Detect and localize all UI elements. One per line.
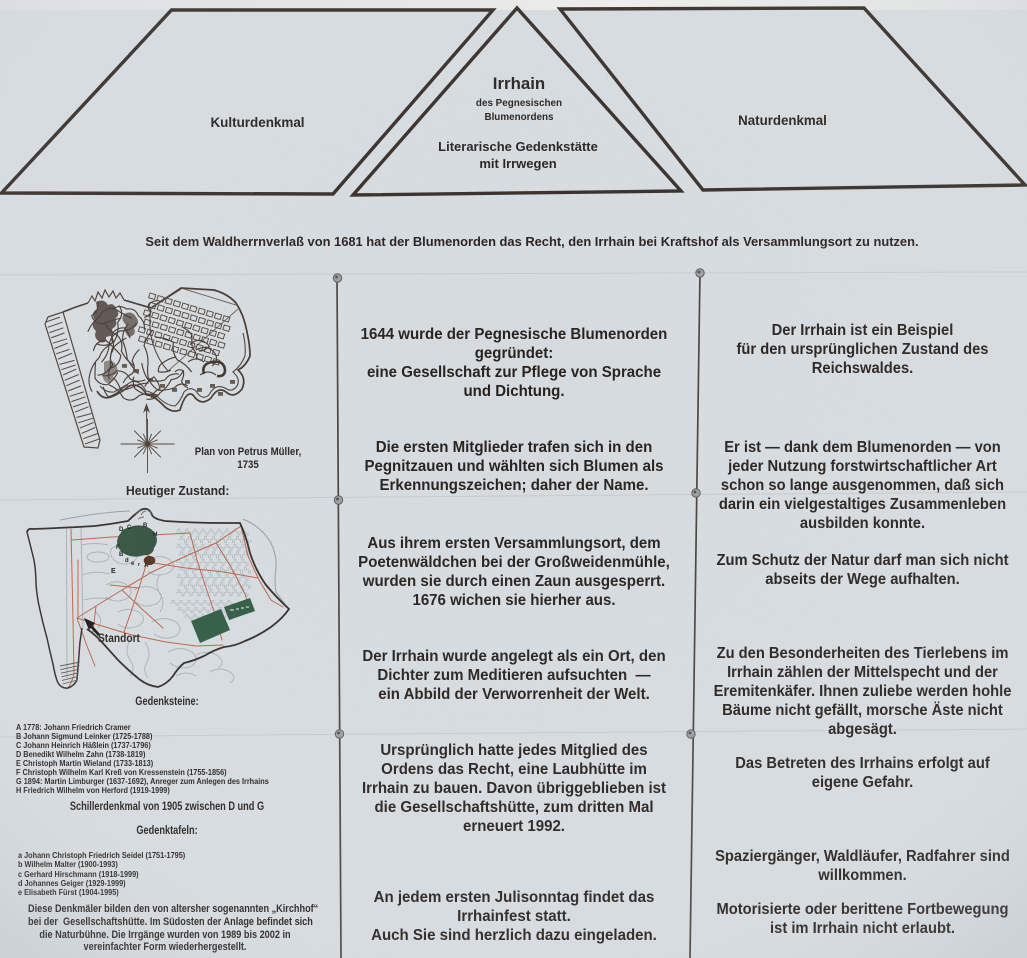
svg-text:e: e [131,561,135,567]
svg-text:E: E [111,568,116,575]
svg-text:C: C [127,525,132,531]
svg-text:r: r [138,562,140,568]
svg-text:B: B [119,552,124,558]
svg-text:F: F [116,545,120,551]
svg-text:d: d [125,558,129,564]
svg-text:H: H [153,532,157,538]
svg-text:A: A [144,563,149,569]
svg-text:D: D [119,527,124,533]
svg-text:B: B [143,523,148,529]
